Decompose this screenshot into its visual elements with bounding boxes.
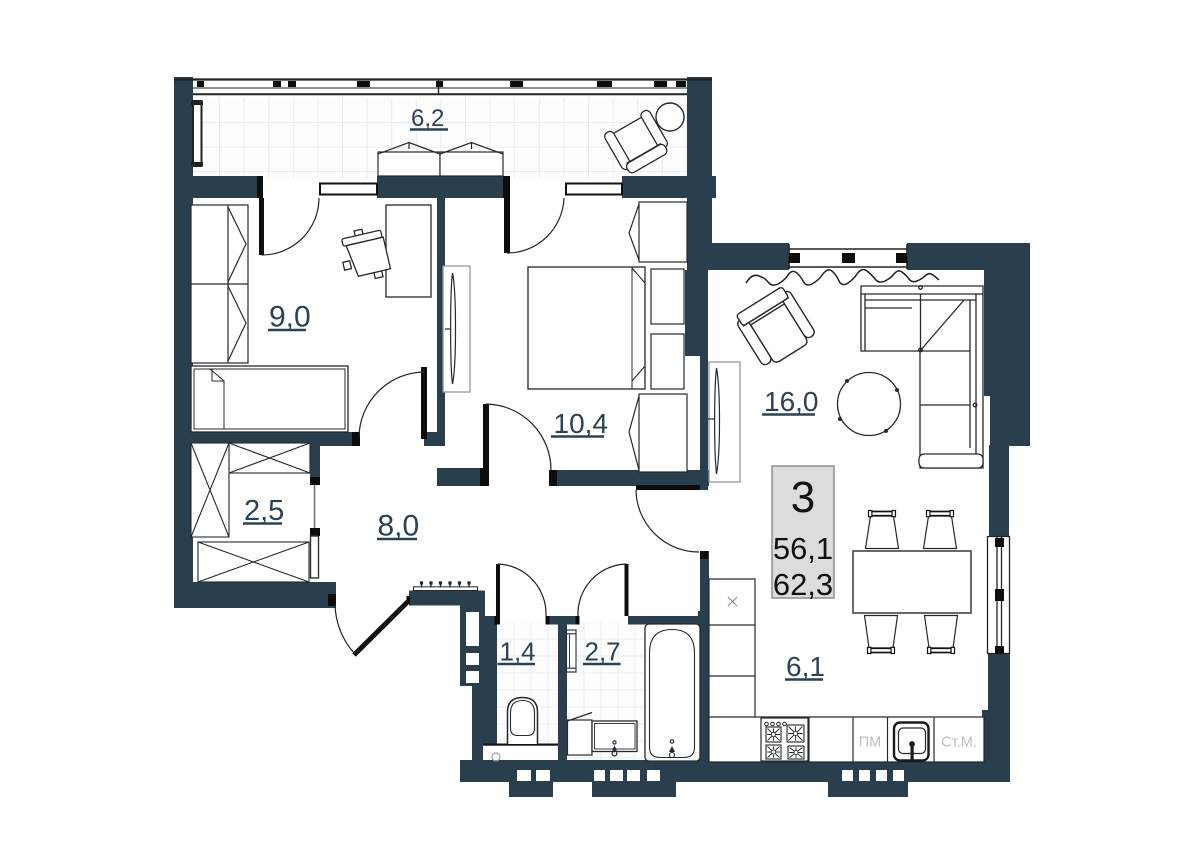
svg-text:3: 3 bbox=[791, 473, 815, 522]
svg-text:6,1: 6,1 bbox=[786, 651, 825, 682]
svg-text:6,2: 6,2 bbox=[411, 105, 444, 132]
svg-text:ПМ: ПМ bbox=[859, 735, 882, 751]
svg-text:8,0: 8,0 bbox=[378, 510, 420, 543]
svg-text:16,0: 16,0 bbox=[764, 386, 819, 417]
svg-text:1,4: 1,4 bbox=[500, 637, 536, 667]
svg-text:9,0: 9,0 bbox=[269, 301, 311, 334]
svg-text:2,7: 2,7 bbox=[585, 637, 621, 667]
svg-text:56,1: 56,1 bbox=[773, 531, 833, 566]
svg-text:Ст.М.: Ст.М. bbox=[941, 735, 977, 751]
svg-text:62,3: 62,3 bbox=[773, 567, 833, 602]
svg-text:10,4: 10,4 bbox=[554, 408, 609, 439]
